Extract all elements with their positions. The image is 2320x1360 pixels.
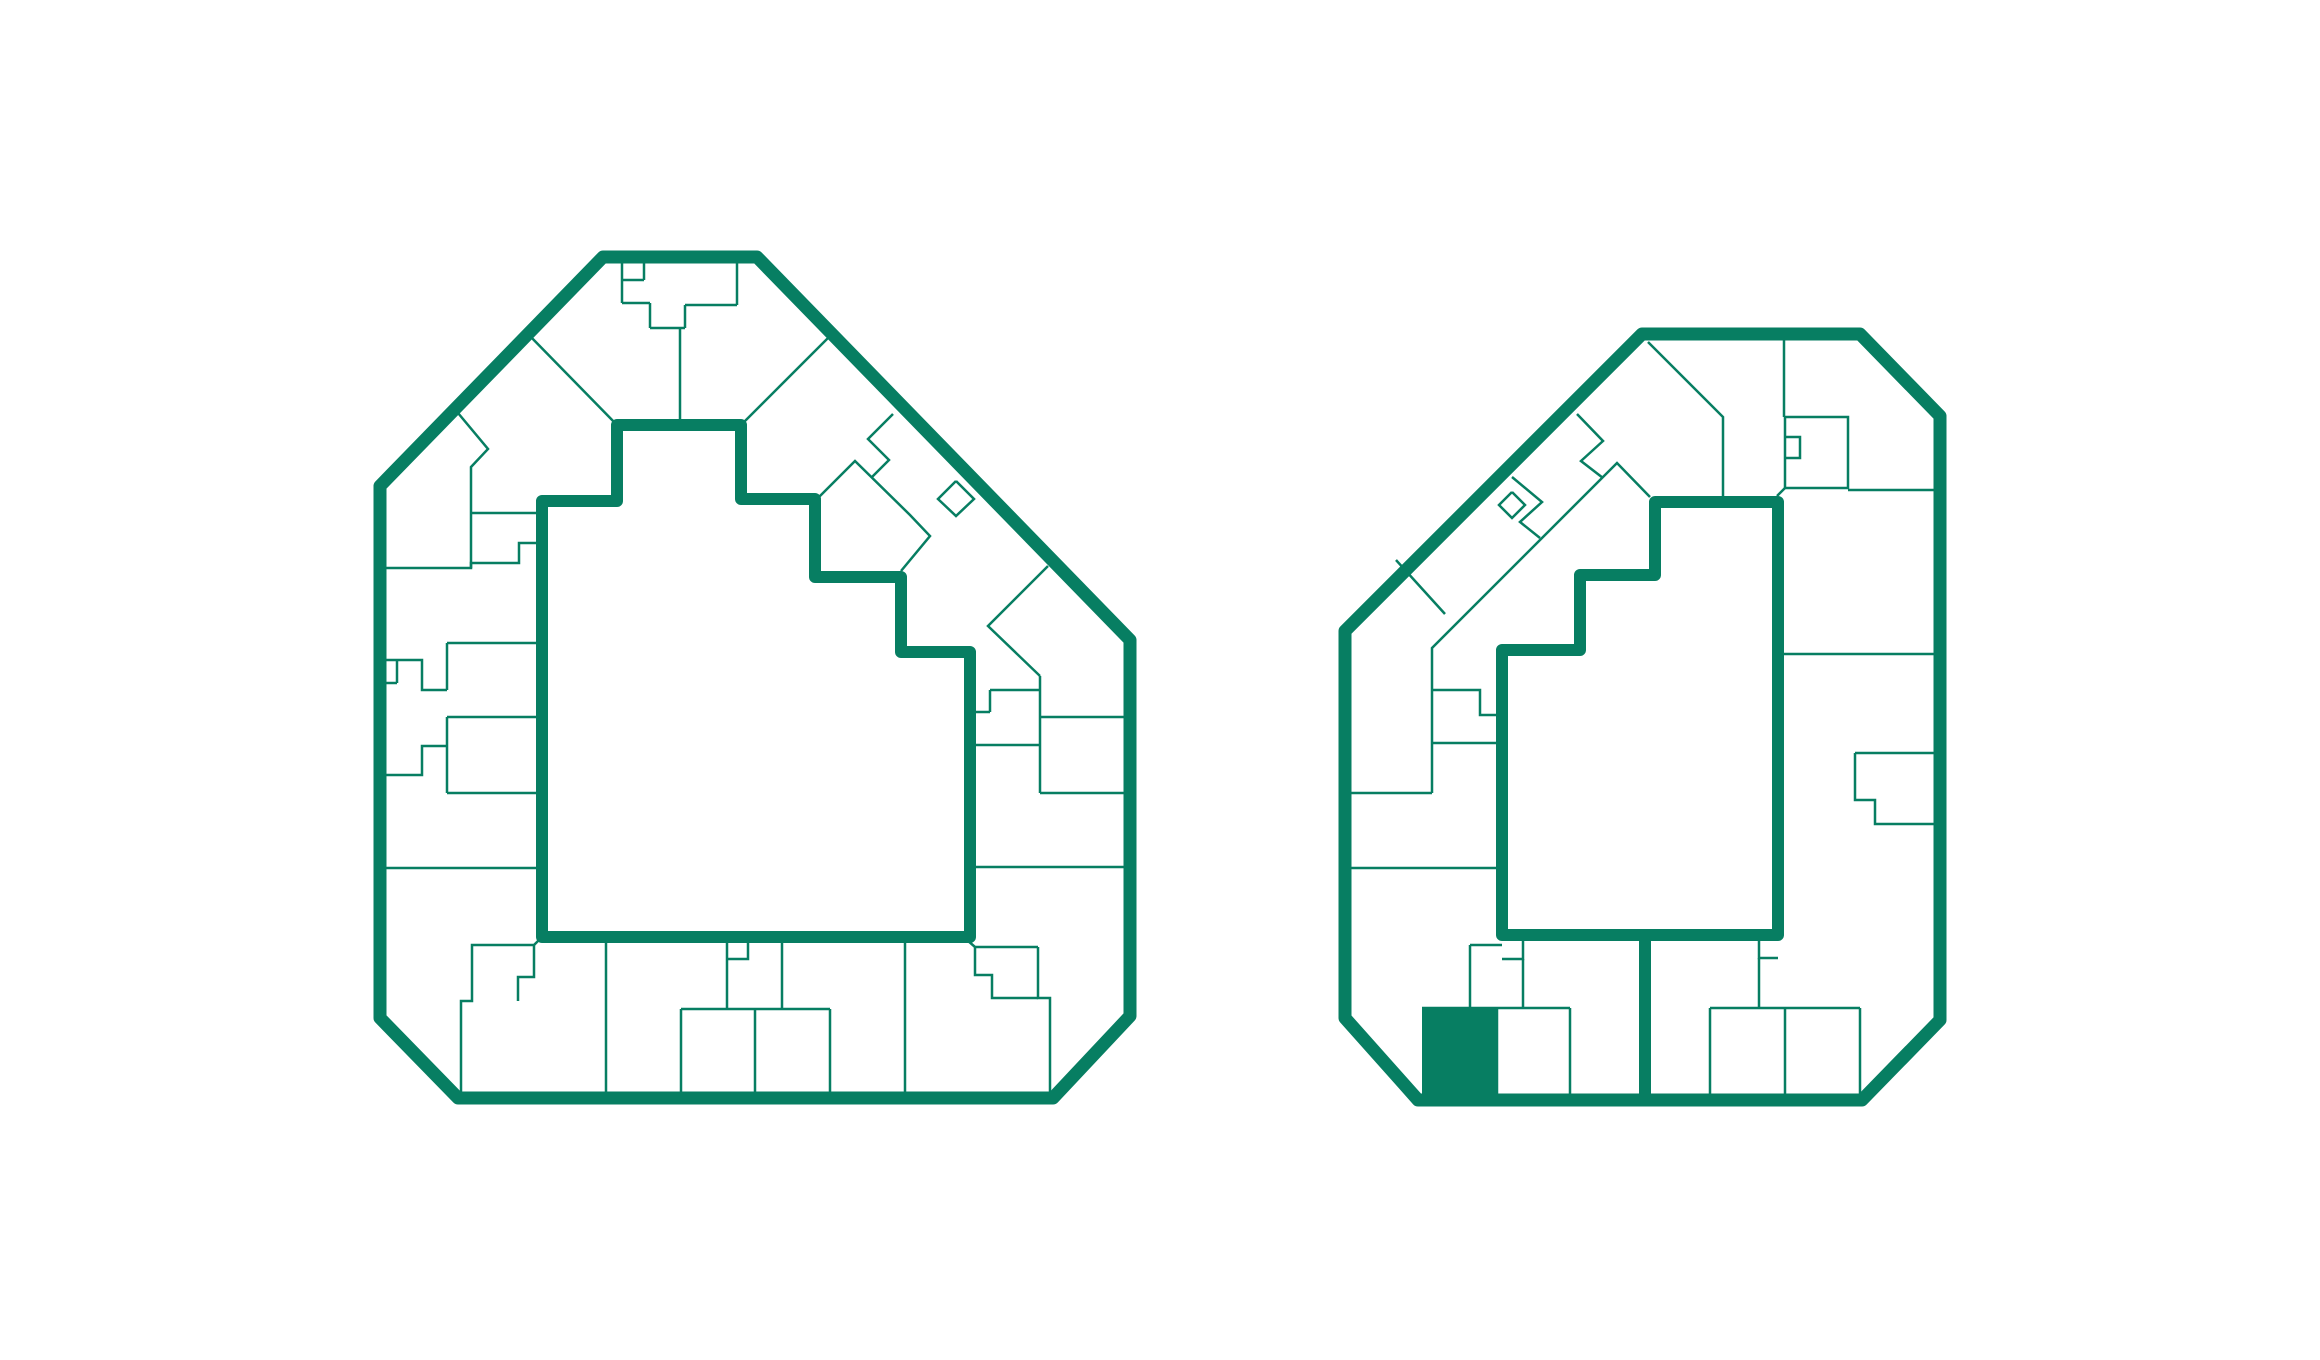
- building-b-floorplan[interactable]: [1345, 334, 1940, 1100]
- unit-divider-line: [868, 414, 893, 478]
- unit-divider-line: [527, 333, 617, 425]
- building-a-courtyard-outline: [542, 425, 970, 937]
- unit-divider-line: [461, 938, 541, 1096]
- unit-divider-line: [1855, 753, 1937, 824]
- unit-divider-line: [1759, 941, 1778, 958]
- unit-divider-line: [1785, 437, 1800, 458]
- unit-divider-line: [1038, 947, 1050, 1098]
- unit-divider-line: [1432, 690, 1502, 715]
- unit-divider-line: [1777, 488, 1785, 496]
- unit-divider-line: [741, 333, 833, 425]
- unit-divider-line: [382, 660, 447, 690]
- unit-divider-line: [988, 566, 1048, 676]
- floorplans-svg: [0, 0, 2320, 1360]
- unit-divider-line: [1577, 414, 1603, 478]
- building-b-courtyard-outline: [1502, 502, 1778, 935]
- building-a-outer-boundary[interactable]: [380, 257, 1130, 1098]
- unit-divider-line: [1785, 417, 1848, 488]
- floorplan-canvas: [0, 0, 2320, 1360]
- building-a-floorplan[interactable]: [380, 257, 1130, 1098]
- highlighted-unit[interactable]: [1422, 1008, 1497, 1098]
- unit-divider-line: [938, 481, 974, 516]
- unit-divider-line: [1502, 938, 1523, 959]
- unit-divider-line: [382, 543, 542, 568]
- unit-divider-line: [967, 940, 1038, 947]
- unit-divider-line: [518, 945, 534, 1001]
- unit-divider-line: [815, 461, 930, 571]
- unit-divider-line: [453, 407, 488, 568]
- unit-divider-line: [1512, 477, 1542, 538]
- unit-divider-line: [382, 746, 447, 775]
- building-a-unit-dividers: [382, 259, 1130, 1098]
- unit-divider-line: [1648, 342, 1723, 502]
- unit-divider-line: [727, 941, 748, 959]
- unit-divider-line: [1499, 492, 1525, 518]
- unit-divider-line: [975, 947, 1038, 998]
